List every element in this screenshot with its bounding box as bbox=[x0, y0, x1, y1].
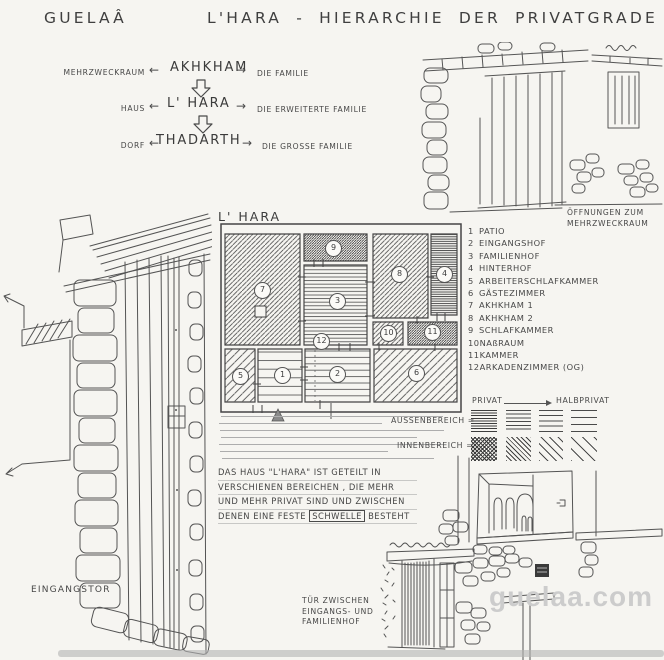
aussenbereich-label: AUSSENBEREICH = bbox=[391, 416, 475, 425]
schwelle-box: SCHWELLE bbox=[309, 510, 365, 522]
scanned-sketch-page: GUELAÂ L'HARA - HIERARCHIE DER PRIVATGRA… bbox=[0, 0, 664, 660]
room-number-9: 9 bbox=[325, 240, 342, 257]
right-arrow-icon: → bbox=[242, 136, 252, 150]
caption-door-line1: TÜR ZWISCHEN bbox=[302, 596, 374, 607]
legend-item: 5ARBEITERSCHLAFKAMMER bbox=[468, 275, 599, 287]
paragraph-line: DAS HAUS "L'HARA" IST GETEILT IN bbox=[218, 467, 417, 481]
room-legend-list: 1PATIO 2EINGANGSHOF 3FAMILIENHOF 4HINTER… bbox=[468, 225, 599, 374]
room-number-2: 2 bbox=[329, 366, 346, 383]
legend-item: 10NAßRAUM bbox=[468, 337, 599, 349]
legend-item: 12ARKADENZIMMER (OG) bbox=[468, 361, 599, 373]
right-arrow-icon: → bbox=[236, 63, 246, 77]
privat-label: PRIVAT bbox=[472, 396, 502, 405]
hierarchy-right-label: DIE FAMILIE bbox=[257, 69, 309, 78]
left-arrow-icon: ← bbox=[149, 63, 159, 77]
room-number-7: 7 bbox=[254, 282, 271, 299]
room-number-5: 5 bbox=[232, 368, 249, 385]
paragraph-line: DENEN EINE FESTE SCHWELLE BESTEHT bbox=[218, 511, 417, 525]
caption-door-line2: EINGANGS- UND bbox=[302, 607, 374, 618]
caption-openings-line1: ÖFFNUNGEN ZUM bbox=[567, 207, 649, 218]
room-number-11: 11 bbox=[424, 324, 441, 341]
legend-item: 1PATIO bbox=[468, 225, 599, 237]
caption-entrance-gate: EINGANGSTOR bbox=[31, 585, 111, 595]
halbprivat-label: HALBPRIVAT bbox=[556, 396, 610, 405]
innenbereich-label: INNENBEREICH = bbox=[397, 441, 473, 450]
legend-item: 3FAMILIENHOF bbox=[468, 250, 599, 262]
hierarchy-term: L' HARA bbox=[167, 96, 231, 111]
room-number-3: 3 bbox=[329, 293, 346, 310]
legend-item: 6GÄSTEZIMMER bbox=[468, 287, 599, 299]
room-number-1: 1 bbox=[274, 367, 291, 384]
legend-item: 7AKHKHAM 1 bbox=[468, 299, 599, 311]
hierarchy-right-label: DIE GROSSE FAMILIE bbox=[262, 142, 353, 151]
stamp-mark bbox=[535, 564, 549, 577]
door-opening-ticks bbox=[253, 259, 445, 413]
room-number-12: 12 bbox=[313, 333, 330, 350]
hierarchy-term: THADARTH bbox=[156, 133, 242, 148]
legend-item: 4HINTERHOF bbox=[468, 262, 599, 274]
squiggle-mark bbox=[606, 46, 636, 51]
caption-courtyard-door: TÜR ZWISCHEN EINGANGS- UND FAMILIENHOF bbox=[302, 596, 374, 628]
left-arrow-icon: ← bbox=[149, 99, 159, 113]
room-number-10: 10 bbox=[380, 325, 397, 342]
hierarchy-left-label: MEHRZWECKRAUM bbox=[58, 68, 145, 77]
swatch-outdoor-dense bbox=[471, 410, 497, 432]
swatch-outdoor-medium bbox=[506, 410, 531, 432]
caption-door-line3: FAMILIENHOF bbox=[302, 617, 374, 628]
legend-item: 9SCHLAFKAMMER bbox=[468, 324, 599, 336]
legend-item: 8AKHKHAM 2 bbox=[468, 312, 599, 324]
room-number-4: 4 bbox=[436, 266, 453, 283]
floor-plan: 1 2 3 4 5 6 7 8 9 10 11 12 bbox=[219, 222, 463, 424]
swatch-indoor-sparse bbox=[539, 437, 563, 461]
privacy-gradient-arrow-icon bbox=[504, 403, 550, 404]
description-paragraph: DAS HAUS "L'HARA" IST GETEILT IN VERSCHI… bbox=[218, 467, 417, 525]
swatch-outdoor-xsparse bbox=[571, 410, 597, 432]
legend-item: 2EINGANGSHOF bbox=[468, 237, 599, 249]
hierarchy-right-label: DIE ERWEITERTE FAMILIE bbox=[257, 105, 367, 114]
legend-item: 11KAMMER bbox=[468, 349, 599, 361]
page-title-left: GUELAÂ bbox=[44, 9, 127, 27]
room-number-6: 6 bbox=[408, 365, 425, 382]
entrance-marker bbox=[272, 409, 284, 421]
room-number-8: 8 bbox=[391, 266, 408, 283]
swatch-indoor-dense bbox=[471, 437, 497, 461]
right-arrow-icon: → bbox=[236, 99, 246, 113]
hierarchy-left-label: DORF bbox=[58, 141, 145, 150]
multipurpose-room-openings-sketch bbox=[420, 42, 664, 214]
scan-edge-shadow bbox=[58, 650, 664, 657]
paragraph-line: UND MEHR PRIVAT SIND UND ZWISCHEN bbox=[218, 496, 417, 510]
down-block-arrow-icon bbox=[193, 115, 213, 134]
swatch-indoor-medium bbox=[506, 437, 531, 461]
watermark: guelaa.com bbox=[489, 581, 653, 613]
paragraph-line: VERSCHIENEN BEREICHEN , DIE MEHR bbox=[218, 482, 417, 496]
swatch-indoor-xsparse bbox=[571, 437, 597, 461]
swatch-outdoor-sparse bbox=[539, 410, 563, 432]
hierarchy-left-label: HAUS bbox=[58, 104, 145, 113]
page-title-right: L'HARA - HIERARCHIE DER PRIVATGRADE bbox=[207, 9, 658, 27]
arcade-inset-frame bbox=[477, 471, 573, 538]
